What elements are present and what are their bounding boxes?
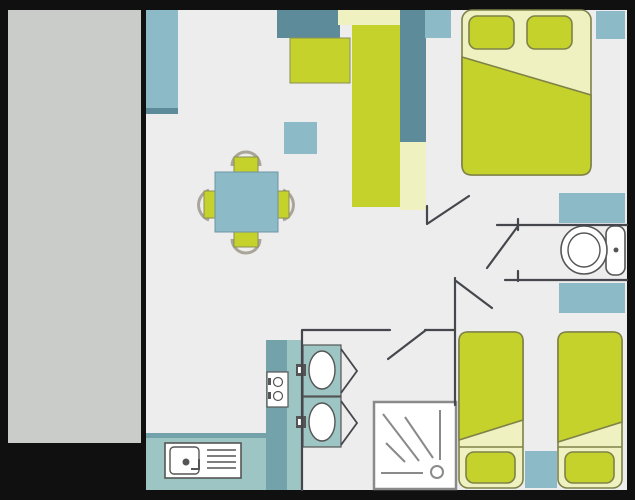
kitchen-counter-tall-top	[287, 340, 302, 490]
stool	[284, 122, 317, 154]
kitchen-block	[290, 38, 350, 83]
bathroom-cabinet	[559, 283, 625, 313]
toilet-icon	[561, 226, 625, 275]
terrace-deck	[8, 10, 141, 443]
pillow	[469, 16, 514, 49]
double-bed	[462, 10, 591, 175]
dining-chair	[234, 231, 258, 247]
blanket	[558, 332, 622, 442]
twin-bed	[459, 332, 523, 488]
pillow	[527, 16, 572, 49]
dining-chair	[277, 191, 289, 218]
window-shelf	[425, 10, 451, 38]
kitchen-counter-tall	[266, 340, 287, 490]
dining-table	[215, 172, 278, 232]
kitchen-counter-edge	[146, 433, 270, 438]
wall-cabinet	[146, 10, 178, 110]
pillow	[466, 452, 515, 483]
twin-bed	[558, 332, 622, 488]
nightstand	[525, 451, 557, 488]
blanket	[459, 332, 523, 440]
washbasin-bowl	[309, 403, 335, 441]
bathroom-cabinet	[559, 193, 625, 223]
counter-side-strip	[400, 142, 426, 210]
shower-icon	[374, 402, 456, 489]
pillow	[565, 452, 614, 483]
dining-chair	[234, 157, 258, 173]
tall-cabinet	[400, 10, 426, 142]
stove-icon	[267, 372, 288, 407]
kitchen-sink-icon	[165, 443, 241, 478]
floorplan-drawing	[0, 0, 635, 500]
washbasin-bowl	[309, 351, 335, 389]
overhead-unit	[277, 10, 340, 38]
wall-cabinet-edge	[146, 108, 178, 114]
dining-chair	[204, 191, 216, 218]
wc	[559, 193, 625, 313]
window-shelf	[596, 11, 625, 39]
counter-top-strip	[338, 10, 400, 25]
floorplan-canvas	[0, 0, 635, 500]
wardrobe-column	[352, 25, 400, 207]
